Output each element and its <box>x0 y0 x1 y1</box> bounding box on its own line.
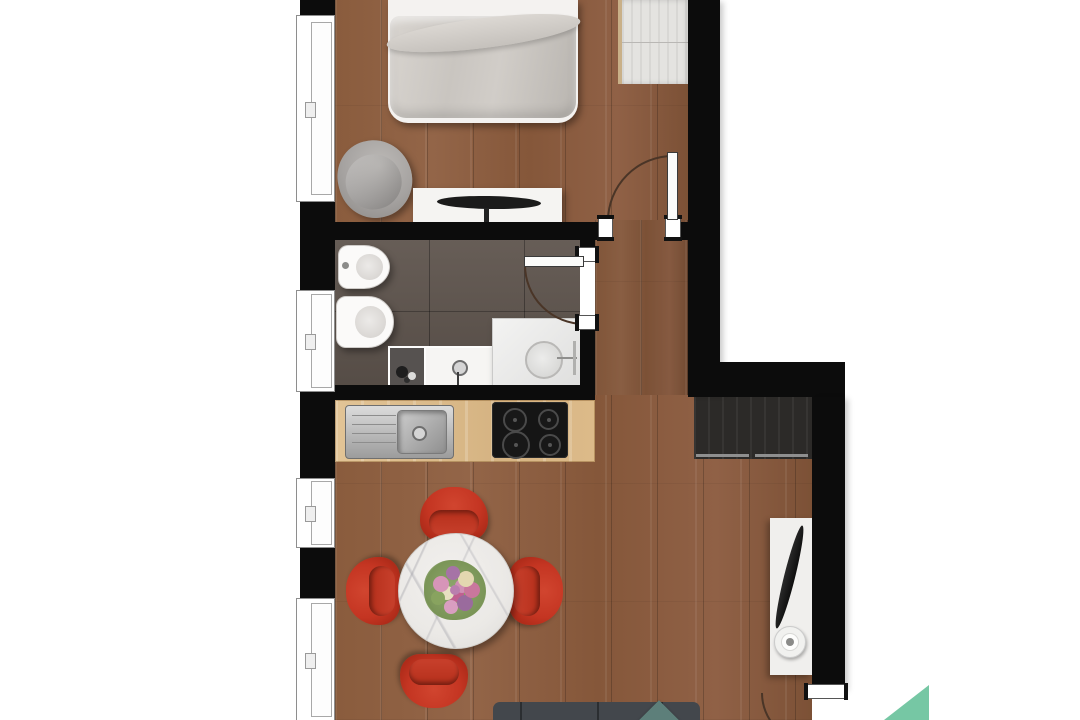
bedroom-wardrobe <box>618 0 691 84</box>
entry-door-jamb <box>806 684 846 699</box>
kitchen-sink <box>345 405 454 459</box>
living-top-wall <box>688 362 845 397</box>
bedroom-door-leaf <box>667 152 678 220</box>
floor-plan <box>0 0 1080 720</box>
window-handle <box>305 653 316 669</box>
closet-handle-right <box>755 454 808 457</box>
bathroom-door-jamb-bottom <box>577 315 597 330</box>
round-speaker <box>774 626 806 658</box>
brand-logo-triangle <box>884 685 929 720</box>
burner-top-left <box>503 408 527 432</box>
bidet-tap <box>342 262 349 269</box>
bedroom-door-jamb-left <box>598 217 613 239</box>
shower <box>492 318 582 390</box>
bedroom-bathroom-wall <box>300 222 608 240</box>
burner-bottom-left <box>502 431 530 459</box>
window-handle <box>305 102 316 118</box>
closet-handle-left <box>696 454 749 457</box>
burner-bottom-right <box>539 434 561 456</box>
shower-drain <box>525 341 563 379</box>
bedroom-door-jamb-right <box>665 217 681 239</box>
dining-chair-left <box>346 557 400 625</box>
burner-top-right <box>538 409 559 430</box>
window-handle <box>305 506 316 522</box>
bedroom-window <box>296 15 335 202</box>
sofa <box>493 702 700 720</box>
toiletries <box>396 366 408 378</box>
bathroom-window <box>296 290 335 392</box>
double-bed <box>388 0 578 123</box>
sink-drainboard <box>352 413 396 451</box>
sink-faucet <box>412 426 427 441</box>
sofa-seam <box>520 702 522 720</box>
hall-dark-closet <box>694 397 812 459</box>
vanity-faucet <box>452 360 468 376</box>
sofa-seam <box>597 702 599 720</box>
bed-duvet <box>390 16 576 118</box>
sofa-teal-pillow <box>639 700 679 720</box>
flower-bouquet <box>450 585 460 595</box>
bathroom-storage-box <box>388 346 427 390</box>
living-window-upper <box>296 478 335 548</box>
shower-handle <box>573 341 576 375</box>
toilet <box>336 296 394 348</box>
window-handle <box>305 334 316 350</box>
upper-right-wall <box>688 0 720 397</box>
induction-cooktop <box>492 402 568 458</box>
bathroom-bottom-wall <box>300 385 595 400</box>
hallway-floor <box>595 220 688 400</box>
living-right-wall <box>812 397 845 693</box>
living-window-lower <box>296 598 335 720</box>
bathroom-door-leaf <box>524 256 584 267</box>
